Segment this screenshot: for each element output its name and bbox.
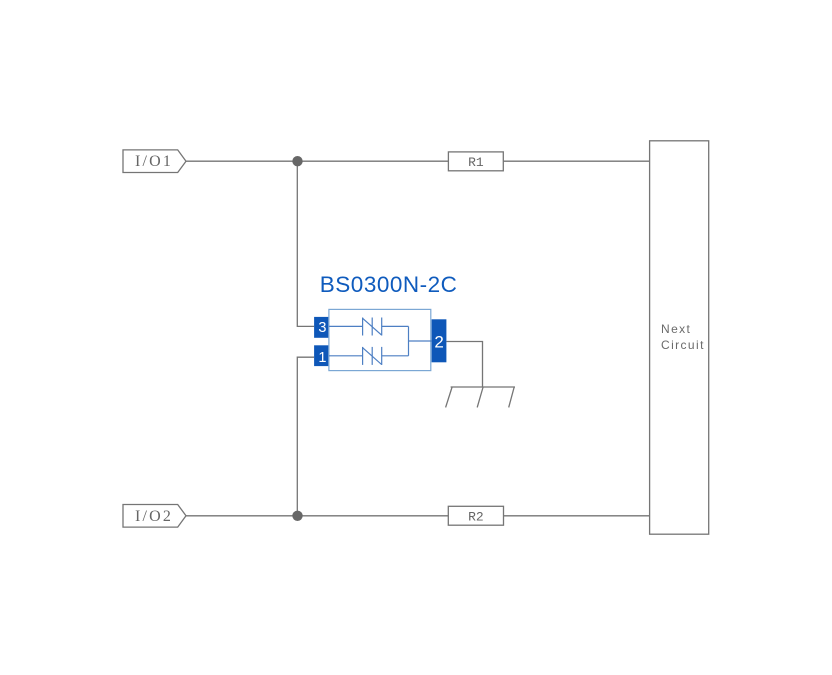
svg-text:I/O2: I/O2	[135, 508, 173, 525]
svg-text:R2: R2	[468, 509, 484, 524]
svg-text:R1: R1	[468, 155, 484, 170]
svg-text:2: 2	[434, 333, 443, 352]
svg-text:3: 3	[318, 320, 326, 336]
svg-text:1: 1	[318, 350, 326, 366]
svg-text:Next: Next	[661, 322, 691, 336]
svg-text:Circuit: Circuit	[661, 338, 705, 352]
svg-text:BS0300N-2C: BS0300N-2C	[320, 272, 458, 297]
svg-text:I/O1: I/O1	[135, 153, 173, 170]
